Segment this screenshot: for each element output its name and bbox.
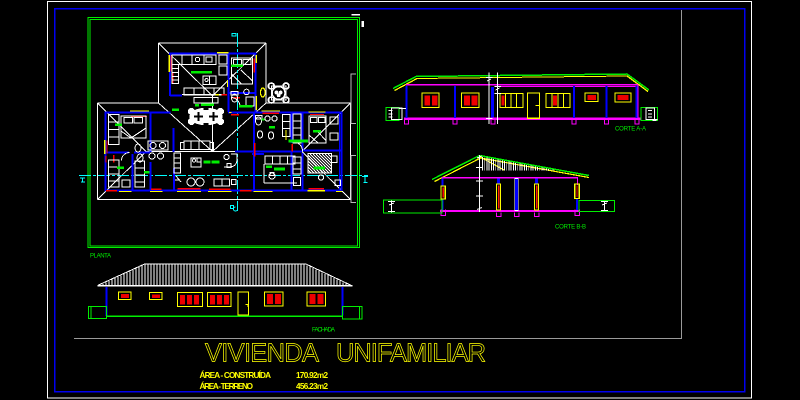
svg-text:FACHADA: FACHADA	[312, 328, 335, 334]
svg-text:VIVIENDA: VIVIENDA	[205, 340, 319, 368]
svg-text:ÁREA - CONSTRUÍDA: ÁREA - CONSTRUÍDA	[200, 370, 272, 380]
svg-text:CORTE B-B: CORTE B-B	[555, 225, 586, 231]
svg-text:456.23m2: 456.23m2	[296, 382, 328, 391]
svg-text:UNIFAMILIAR: UNIFAMILIAR	[336, 340, 486, 368]
svg-text:CORTE A-A: CORTE A-A	[615, 127, 646, 133]
svg-text:ÁREA - TERRENO: ÁREA - TERRENO	[200, 381, 254, 391]
svg-text:170.92m2: 170.92m2	[296, 371, 328, 380]
svg-text:PLANTA: PLANTA	[90, 254, 111, 260]
